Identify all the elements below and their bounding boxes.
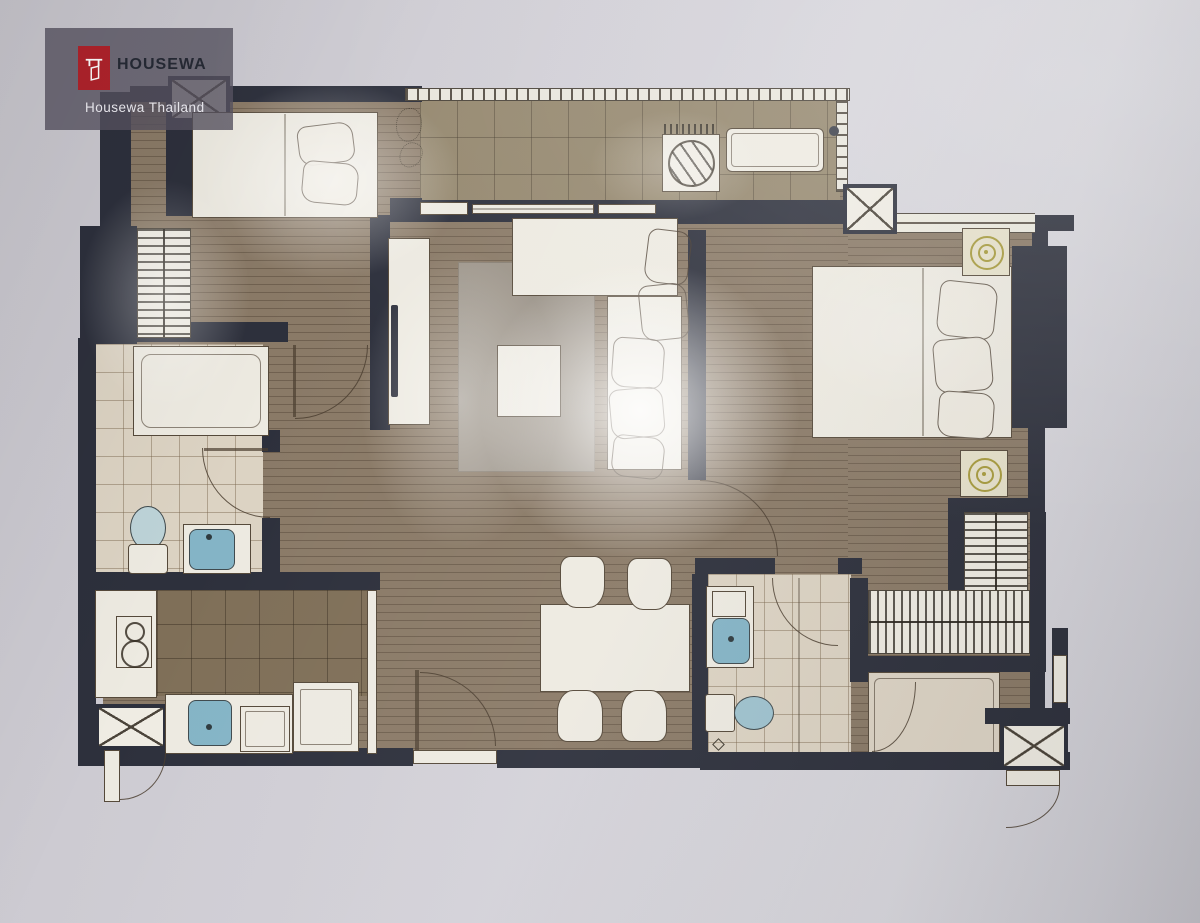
sliding-door <box>472 204 594 214</box>
watermark-box: HOUSEWA Housewa Thailand <box>45 28 233 130</box>
entrance-door-arc <box>120 752 166 800</box>
pillow <box>935 279 999 341</box>
balcony-grille <box>664 124 718 134</box>
lamp-dot <box>984 250 988 254</box>
kitchen-door-leaf <box>415 670 419 750</box>
dining-chair <box>560 556 605 608</box>
wall-segment <box>655 200 855 224</box>
nightstand <box>962 228 1010 276</box>
wall-segment <box>1030 512 1046 672</box>
wall-segment <box>262 518 280 578</box>
kitchen-cabinet <box>240 706 290 752</box>
coffee-table <box>497 345 561 417</box>
dining-chair <box>627 558 672 610</box>
service-shaft <box>1000 722 1068 770</box>
pillow <box>936 390 995 440</box>
stove <box>116 616 152 668</box>
house-door-glyph <box>83 52 105 84</box>
lamp-dot <box>982 472 986 476</box>
pillow <box>296 121 356 168</box>
sofa-cushion <box>610 433 666 480</box>
sink-drain-dot <box>206 724 212 730</box>
wall-segment <box>838 558 862 574</box>
ac-condenser-unit <box>662 134 720 192</box>
shaft-balcony-corner <box>843 184 897 234</box>
pillow <box>932 336 994 395</box>
washbasin-2 <box>189 529 235 570</box>
sofa-cushion <box>643 228 693 287</box>
kitchen-partition <box>367 590 377 754</box>
dining-chair <box>557 690 603 742</box>
tv <box>391 305 398 397</box>
nightstand <box>960 450 1008 497</box>
housewa-logo-icon <box>78 46 110 90</box>
refrigerator-top <box>300 689 352 745</box>
sofa-cushion <box>610 336 665 390</box>
kitchen-floor <box>157 590 369 696</box>
entrance-shaft <box>95 704 167 750</box>
kitchen-sink <box>188 700 232 746</box>
wall-segment <box>95 322 288 342</box>
bathtub-shower <box>133 346 269 436</box>
master-bed-seam <box>922 268 924 436</box>
dining-table <box>540 604 690 692</box>
wall-segment <box>370 215 390 430</box>
column <box>1032 231 1048 249</box>
wall-segment <box>695 558 775 574</box>
pillow <box>300 160 359 207</box>
wall-segment <box>85 572 380 590</box>
brand-name: HOUSEWA <box>117 56 227 74</box>
bench-top <box>731 133 819 167</box>
sliding-door <box>420 202 468 215</box>
burner-icon <box>121 640 149 668</box>
wall-segment <box>1028 428 1045 512</box>
cabinet-top <box>245 711 285 747</box>
balcony-bench <box>726 128 824 172</box>
wall-segment <box>948 498 1036 512</box>
wall-segment <box>78 338 96 758</box>
wall-segment <box>850 656 1040 672</box>
shaft-window <box>1053 655 1067 703</box>
sofa-cushion <box>608 386 666 441</box>
service-door-leaf <box>1006 770 1060 786</box>
entrance-door-leaf <box>104 750 120 802</box>
faucet-dot <box>728 636 734 642</box>
dining-chair <box>621 690 667 742</box>
floor-plan-photo: HOUSEWA Housewa Thailand <box>0 0 1200 923</box>
refrigerator <box>293 682 359 752</box>
burner-icon <box>125 622 145 642</box>
faucet-dot <box>206 534 212 540</box>
vanity-shelf <box>712 591 746 617</box>
ac-fan-icon <box>668 140 715 187</box>
closet-hanging-rail <box>964 512 1028 598</box>
bathtub-rim <box>141 354 261 428</box>
brand-caption: Housewa Thailand <box>85 100 225 115</box>
column <box>1032 215 1074 231</box>
wall-segment <box>948 512 964 600</box>
built-in-wardrobe <box>1012 246 1067 428</box>
sofa-cushion <box>637 282 691 343</box>
closet-hanging-rail <box>868 590 1030 654</box>
service-door-arc <box>1006 786 1060 828</box>
balcony-railing <box>405 88 850 101</box>
toilet-2-tank <box>128 544 168 574</box>
wall-segment <box>1030 672 1045 708</box>
door-threshold <box>413 750 497 764</box>
wall-segment <box>688 230 706 480</box>
sliding-door <box>598 204 656 214</box>
master-toilet-tank <box>705 694 735 732</box>
bed-2-seam <box>284 114 286 216</box>
balcony-dot <box>829 126 839 136</box>
balcony-railing-side <box>836 100 848 192</box>
wall-segment <box>497 750 707 768</box>
master-toilet-bowl <box>734 696 774 730</box>
wall-segment <box>850 752 868 768</box>
wardrobe-hanging-rail <box>137 228 191 338</box>
